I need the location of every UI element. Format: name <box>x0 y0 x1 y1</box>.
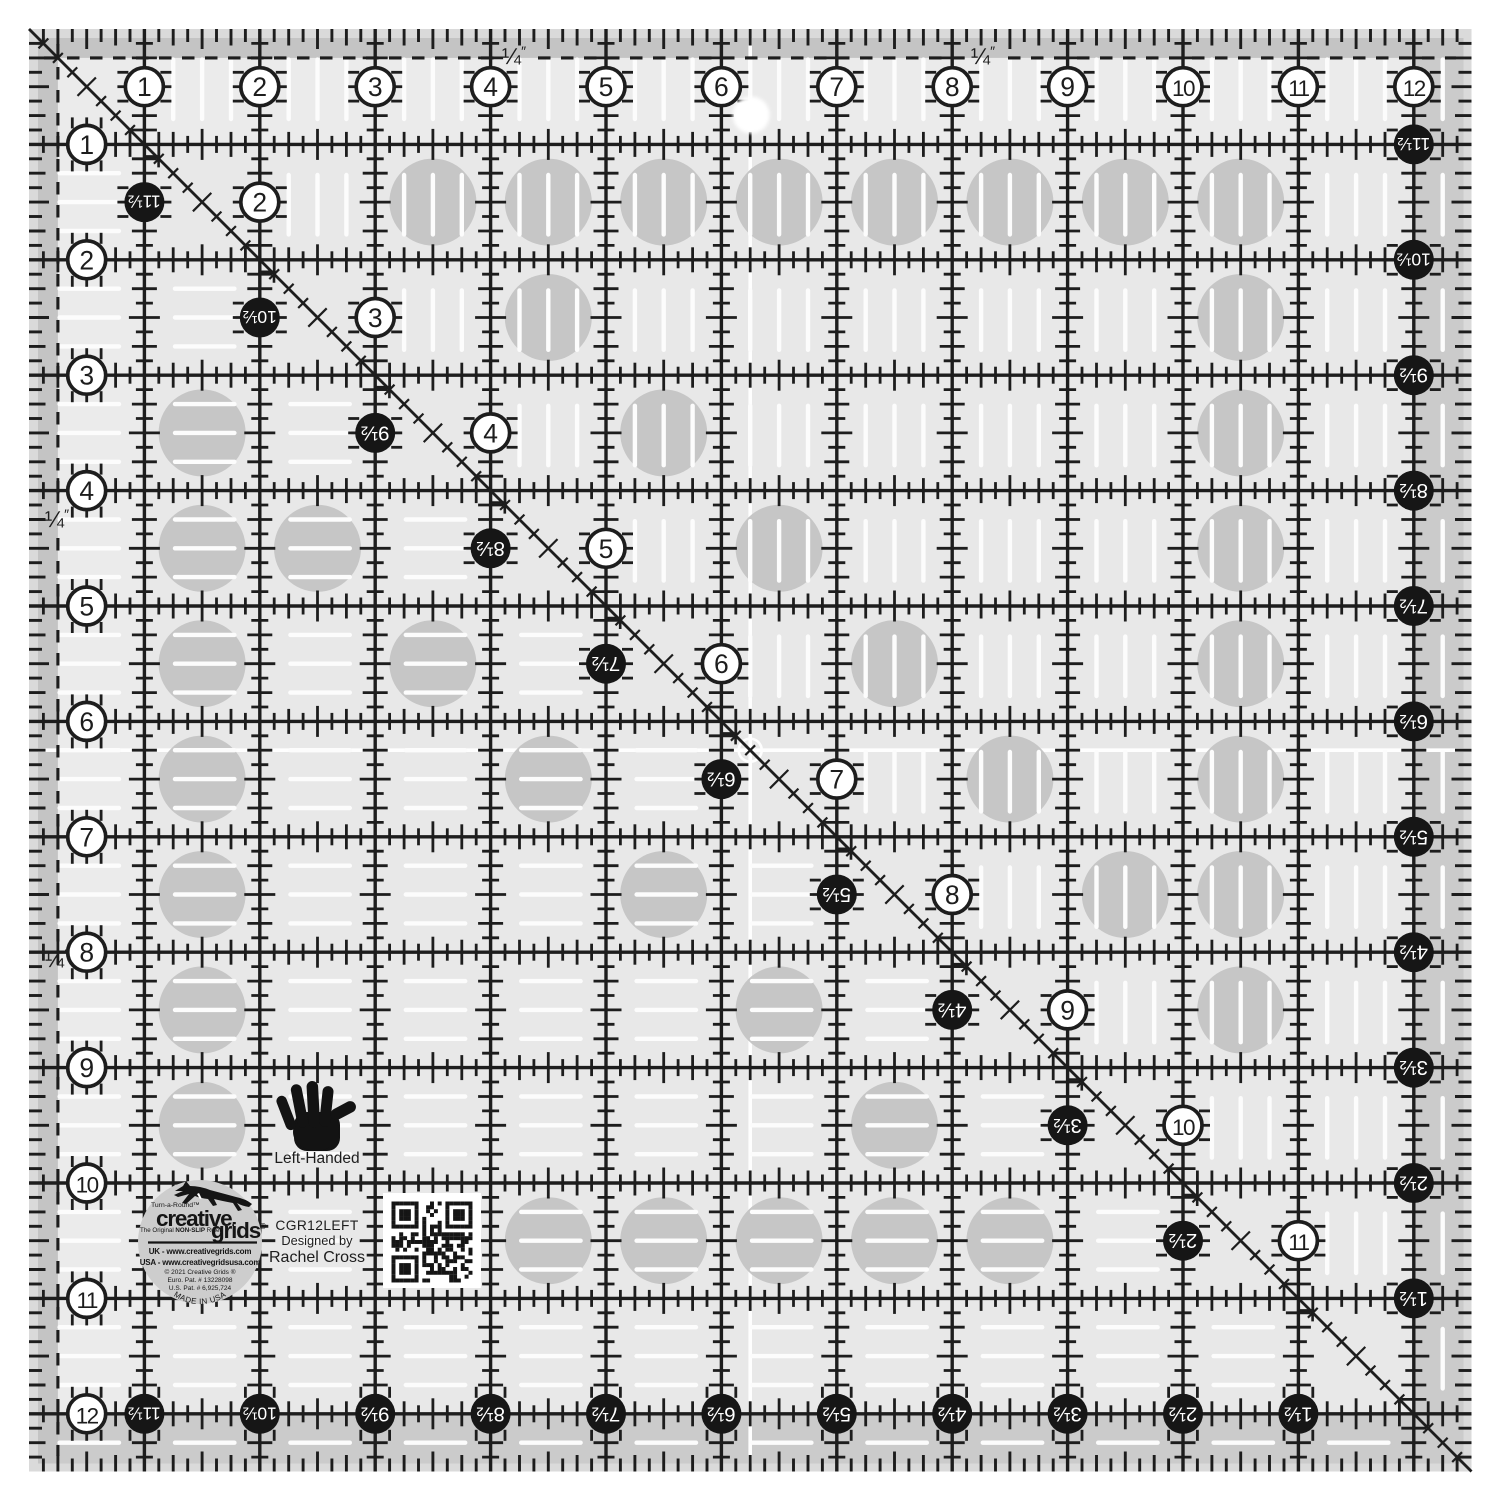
svg-text:3½: 3½ <box>1053 1114 1082 1137</box>
svg-text:9½: 9½ <box>361 1402 390 1425</box>
svg-text:8½: 8½ <box>1400 479 1429 502</box>
svg-text:7½: 7½ <box>1400 595 1429 618</box>
svg-text:11½: 11½ <box>128 192 161 212</box>
svg-text:10½: 10½ <box>242 1403 276 1423</box>
svg-text:11½: 11½ <box>1397 134 1430 154</box>
svg-text:4: 4 <box>483 418 498 448</box>
svg-text:5½: 5½ <box>1400 825 1429 848</box>
svg-text:1: 1 <box>79 130 94 160</box>
svg-text:9½: 9½ <box>361 421 390 444</box>
svg-text:8½: 8½ <box>476 1402 505 1425</box>
svg-text:© 2021 Creative Grids ®: © 2021 Creative Grids ® <box>165 1268 236 1276</box>
svg-text:7: 7 <box>79 822 94 852</box>
svg-text:2: 2 <box>252 72 267 102</box>
svg-text:7½: 7½ <box>592 1402 621 1425</box>
svg-text:5½: 5½ <box>823 1402 852 1425</box>
svg-text:11: 11 <box>1288 76 1309 101</box>
svg-text:4½: 4½ <box>1400 941 1429 964</box>
svg-text:Rachel Cross: Rachel Cross <box>269 1249 365 1266</box>
svg-text:7: 7 <box>829 765 844 795</box>
svg-text:3: 3 <box>79 361 94 391</box>
svg-text:2½: 2½ <box>1169 1229 1198 1252</box>
svg-text:7½: 7½ <box>592 652 621 675</box>
svg-text:1½: 1½ <box>1284 1402 1313 1425</box>
svg-text:9: 9 <box>79 1053 94 1083</box>
svg-text:2½: 2½ <box>1169 1402 1198 1425</box>
svg-text:10: 10 <box>76 1173 99 1198</box>
svg-text:5: 5 <box>79 592 94 622</box>
svg-text:11: 11 <box>77 1288 98 1313</box>
svg-text:8½: 8½ <box>476 537 505 560</box>
svg-text:1½: 1½ <box>1400 1287 1429 1310</box>
svg-text:4½: 4½ <box>938 998 967 1021</box>
svg-text:10: 10 <box>1172 76 1195 101</box>
svg-text:4½: 4½ <box>938 1402 967 1425</box>
svg-text:6½: 6½ <box>1400 710 1429 733</box>
svg-text:9: 9 <box>1060 995 1075 1025</box>
svg-text:5: 5 <box>599 534 614 564</box>
svg-text:2: 2 <box>79 245 94 275</box>
svg-text:10½: 10½ <box>242 307 276 327</box>
svg-text:Euro. Pat. # 13228098: Euro. Pat. # 13228098 <box>167 1277 232 1284</box>
svg-text:11½: 11½ <box>128 1403 161 1423</box>
svg-text:8: 8 <box>79 938 94 968</box>
svg-text:9½: 9½ <box>1400 364 1429 387</box>
svg-text:3½: 3½ <box>1053 1402 1082 1425</box>
svg-text:Left-Handed: Left-Handed <box>274 1150 359 1167</box>
svg-text:1: 1 <box>137 72 152 102</box>
svg-text:UK - www.creativegrids.com: UK - www.creativegrids.com <box>149 1247 252 1256</box>
svg-text:3: 3 <box>368 303 383 333</box>
svg-text:10: 10 <box>1172 1115 1195 1140</box>
svg-text:6½: 6½ <box>707 1402 736 1425</box>
svg-text:USA - www.creativegridsusa.com: USA - www.creativegridsusa.com <box>140 1258 261 1267</box>
svg-text:The Original NON-SLIP Ruler: The Original NON-SLIP Ruler <box>140 1227 222 1234</box>
svg-text:8: 8 <box>945 72 960 102</box>
svg-text:12: 12 <box>76 1403 99 1428</box>
svg-text:12: 12 <box>1403 76 1426 101</box>
svg-text:6: 6 <box>714 72 729 102</box>
svg-text:11: 11 <box>1288 1230 1309 1255</box>
svg-text:3: 3 <box>368 72 383 102</box>
svg-text:10½: 10½ <box>1396 249 1430 269</box>
svg-text:7: 7 <box>829 72 844 102</box>
svg-text:5½: 5½ <box>823 883 852 906</box>
svg-text:4: 4 <box>483 72 498 102</box>
svg-text:2: 2 <box>252 188 267 218</box>
svg-text:9: 9 <box>1060 72 1075 102</box>
svg-text:6: 6 <box>79 707 94 737</box>
svg-text:4: 4 <box>79 476 94 506</box>
svg-text:6: 6 <box>714 649 729 679</box>
svg-text:2½: 2½ <box>1400 1172 1429 1195</box>
svg-text:3½: 3½ <box>1400 1056 1429 1079</box>
svg-text:8: 8 <box>945 880 960 910</box>
svg-text:CGR12LEFT: CGR12LEFT <box>275 1218 359 1233</box>
svg-text:6½: 6½ <box>707 768 736 791</box>
svg-text:5: 5 <box>599 72 614 102</box>
svg-text:Designed by: Designed by <box>281 1233 353 1248</box>
